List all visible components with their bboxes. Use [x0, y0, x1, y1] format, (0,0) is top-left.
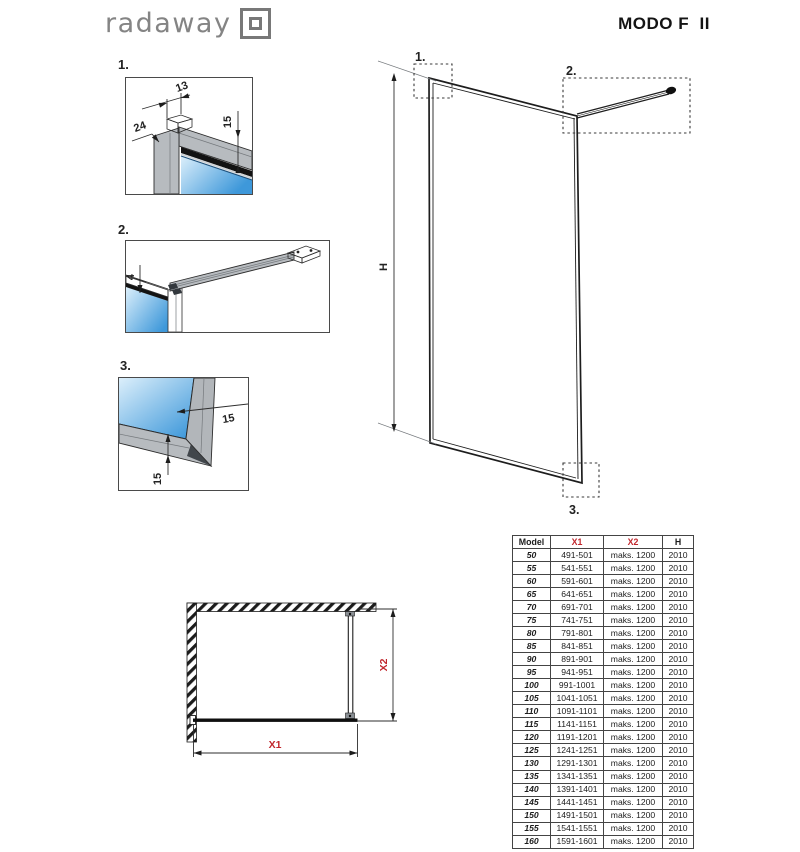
table-cell: 145	[513, 796, 551, 809]
table-cell: 1091-1101	[551, 705, 604, 718]
support-bar	[168, 252, 294, 295]
table-cell: 641-651	[551, 588, 604, 601]
table-cell: 135	[513, 770, 551, 783]
callout-3-label: 3.	[569, 503, 579, 517]
table-cell: 2010	[663, 731, 694, 744]
table-cell: 691-701	[551, 601, 604, 614]
glass-panel-outline	[429, 78, 582, 483]
table-cell: 80	[513, 627, 551, 640]
col-header-x1: X1	[551, 536, 604, 549]
col-header-x2: X2	[604, 536, 663, 549]
dimension-24: 24	[132, 119, 161, 143]
table-cell: maks. 1200	[604, 757, 663, 770]
page-title: MODO F II	[0, 14, 710, 34]
table-cell: 1391-1401	[551, 783, 604, 796]
table-cell: maks. 1200	[604, 679, 663, 692]
table-cell: 105	[513, 692, 551, 705]
table-cell: 2010	[663, 562, 694, 575]
table-cell: maks. 1200	[604, 601, 663, 614]
table-cell: maks. 1200	[604, 783, 663, 796]
detail-3-box: 15 15	[118, 377, 249, 491]
table-row: 95941-951maks. 12002010	[513, 666, 694, 679]
callout-2-label: 2.	[566, 64, 576, 78]
table-row: 70691-701maks. 12002010	[513, 601, 694, 614]
table-row: 100991-1001maks. 12002010	[513, 679, 694, 692]
table-cell: 1241-1251	[551, 744, 604, 757]
dim-15-side-label: 15	[221, 412, 235, 426]
table-cell: maks. 1200	[604, 705, 663, 718]
table-row: 50491-501maks. 12002010	[513, 549, 694, 562]
detail-2-drawing: 4	[126, 241, 329, 332]
table-cell: maks. 1200	[604, 666, 663, 679]
table-cell: 2010	[663, 588, 694, 601]
table-cell: maks. 1200	[604, 822, 663, 835]
table-cell: 1341-1351	[551, 770, 604, 783]
table-cell: 2010	[663, 835, 694, 848]
table-cell: 1041-1051	[551, 692, 604, 705]
table-cell: 591-601	[551, 575, 604, 588]
table-cell: 95	[513, 666, 551, 679]
table-cell: 125	[513, 744, 551, 757]
table-cell: 155	[513, 822, 551, 835]
table-cell: 85	[513, 640, 551, 653]
col-header-h: H	[663, 536, 694, 549]
x1-dimension: X1	[194, 724, 358, 757]
table-cell: 55	[513, 562, 551, 575]
table-row: 65641-651maks. 12002010	[513, 588, 694, 601]
table-cell: 2010	[663, 653, 694, 666]
table-cell: 891-901	[551, 653, 604, 666]
table-cell: 1541-1551	[551, 822, 604, 835]
table-cell: maks. 1200	[604, 614, 663, 627]
table-cell: 2010	[663, 692, 694, 705]
table-cell: 2010	[663, 666, 694, 679]
table-cell: maks. 1200	[604, 692, 663, 705]
table-cell: 1441-1451	[551, 796, 604, 809]
table-row: 1451441-1451maks. 12002010	[513, 796, 694, 809]
size-table-grid: Model X1 X2 H 50491-501maks. 12002010555…	[512, 535, 694, 849]
plan-view-drawing: X1 X2	[180, 595, 405, 770]
x1-dimension-label: X1	[269, 739, 282, 751]
height-dimension: H	[378, 61, 436, 444]
table-cell: maks. 1200	[604, 718, 663, 731]
table-cell: 2010	[663, 718, 694, 731]
dim-13-label: 13	[174, 79, 190, 94]
x2-dimension-label: X2	[378, 658, 390, 671]
table-row: 1251241-1251maks. 12002010	[513, 744, 694, 757]
table-cell: 60	[513, 575, 551, 588]
table-cell: 841-851	[551, 640, 604, 653]
table-cell: 2010	[663, 744, 694, 757]
table-header-row: Model X1 X2 H	[513, 536, 694, 549]
support-bar	[577, 86, 677, 118]
table-cell: 2010	[663, 757, 694, 770]
table-cell: 50	[513, 549, 551, 562]
table-cell: maks. 1200	[604, 731, 663, 744]
table-cell: 791-801	[551, 627, 604, 640]
main-elevation-svg: H 1. 2. 3.	[370, 45, 705, 525]
table-cell: maks. 1200	[604, 640, 663, 653]
table-cell: 2010	[663, 783, 694, 796]
detail-3-drawing: 15 15	[119, 378, 248, 490]
table-cell: 1291-1301	[551, 757, 604, 770]
plan-view-svg: X1 X2	[180, 595, 405, 770]
dim-15-bottom-label: 15	[152, 473, 164, 485]
table-cell: 2010	[663, 575, 694, 588]
table-cell: 1491-1501	[551, 809, 604, 822]
table-cell: maks. 1200	[604, 796, 663, 809]
table-cell: 541-551	[551, 562, 604, 575]
table-cell: 2010	[663, 705, 694, 718]
table-cell: maks. 1200	[604, 835, 663, 848]
table-cell: 2010	[663, 549, 694, 562]
dim-15-top-label: 15	[222, 116, 234, 128]
table-cell: maks. 1200	[604, 562, 663, 575]
main-elevation-drawing: H 1. 2. 3.	[370, 45, 705, 525]
table-cell: 2010	[663, 614, 694, 627]
table-cell: 941-951	[551, 666, 604, 679]
table-cell: 1191-1201	[551, 731, 604, 744]
table-cell: maks. 1200	[604, 809, 663, 822]
table-cell: 120	[513, 731, 551, 744]
table-row: 1551541-1551maks. 12002010	[513, 822, 694, 835]
table-cell: 2010	[663, 796, 694, 809]
table-cell: maks. 1200	[604, 653, 663, 666]
table-cell: 2010	[663, 640, 694, 653]
size-table: Model X1 X2 H 50491-501maks. 12002010555…	[512, 535, 693, 849]
table-cell: 130	[513, 757, 551, 770]
table-row: 75741-751maks. 12002010	[513, 614, 694, 627]
table-cell: 2010	[663, 822, 694, 835]
table-row: 60591-601maks. 12002010	[513, 575, 694, 588]
table-cell: maks. 1200	[604, 770, 663, 783]
table-cell: 2010	[663, 601, 694, 614]
detail-1-label: 1.	[118, 57, 129, 72]
table-row: 55541-551maks. 12002010	[513, 562, 694, 575]
table-cell: maks. 1200	[604, 627, 663, 640]
wall-bracket-end	[665, 86, 677, 96]
table-cell: 2010	[663, 770, 694, 783]
support-bar-plan	[346, 612, 355, 719]
table-cell: 2010	[663, 627, 694, 640]
table-cell: 70	[513, 601, 551, 614]
table-cell: 491-501	[551, 549, 604, 562]
table-cell: 2010	[663, 809, 694, 822]
callout-1-label: 1.	[415, 50, 425, 64]
table-cell: 90	[513, 653, 551, 666]
x2-dimension: X2	[357, 609, 397, 721]
table-cell: 1141-1151	[551, 718, 604, 731]
glass-panel-plan	[190, 716, 358, 725]
table-cell: maks. 1200	[604, 588, 663, 601]
table-row: 85841-851maks. 12002010	[513, 640, 694, 653]
table-row: 90891-901maks. 12002010	[513, 653, 694, 666]
table-row: 1201191-1201maks. 12002010	[513, 731, 694, 744]
table-row: 1301291-1301maks. 12002010	[513, 757, 694, 770]
detail-1-box: 13 24 15	[125, 77, 253, 195]
detail-3-label: 3.	[120, 358, 131, 373]
table-row: 1601591-1601maks. 12002010	[513, 835, 694, 848]
height-dimension-label: H	[378, 263, 390, 271]
table-row: 1151141-1151maks. 12002010	[513, 718, 694, 731]
table-row: 1351341-1351maks. 12002010	[513, 770, 694, 783]
col-header-model: Model	[513, 536, 551, 549]
dimension-13: 13	[142, 79, 190, 118]
table-row: 1101091-1101maks. 12002010	[513, 705, 694, 718]
table-row: 1401391-1401maks. 12002010	[513, 783, 694, 796]
table-cell: 75	[513, 614, 551, 627]
table-cell: 140	[513, 783, 551, 796]
top-wall	[187, 603, 376, 612]
detail-2-box: 4	[125, 240, 330, 333]
table-cell: 160	[513, 835, 551, 848]
table-row: 80791-801maks. 12002010	[513, 627, 694, 640]
table-cell: 65	[513, 588, 551, 601]
table-cell: 1591-1601	[551, 835, 604, 848]
table-cell: 110	[513, 705, 551, 718]
table-row: 1501491-1501maks. 12002010	[513, 809, 694, 822]
table-cell: maks. 1200	[604, 549, 663, 562]
detail-1-drawing: 13 24 15	[126, 78, 252, 194]
detail-2-label: 2.	[118, 222, 129, 237]
size-table-body: 50491-501maks. 1200201055541-551maks. 12…	[513, 549, 694, 848]
table-cell: 2010	[663, 679, 694, 692]
table-cell: 741-751	[551, 614, 604, 627]
table-cell: maks. 1200	[604, 744, 663, 757]
table-cell: 100	[513, 679, 551, 692]
table-cell: 115	[513, 718, 551, 731]
table-cell: maks. 1200	[604, 575, 663, 588]
dim-4-label: 4	[126, 273, 137, 280]
technical-sheet: radaway MODO F II 1. 2. 3.	[0, 0, 800, 852]
table-row: 1051041-1051maks. 12002010	[513, 692, 694, 705]
table-cell: 991-1001	[551, 679, 604, 692]
dim-24-label: 24	[132, 119, 148, 135]
table-cell: 150	[513, 809, 551, 822]
